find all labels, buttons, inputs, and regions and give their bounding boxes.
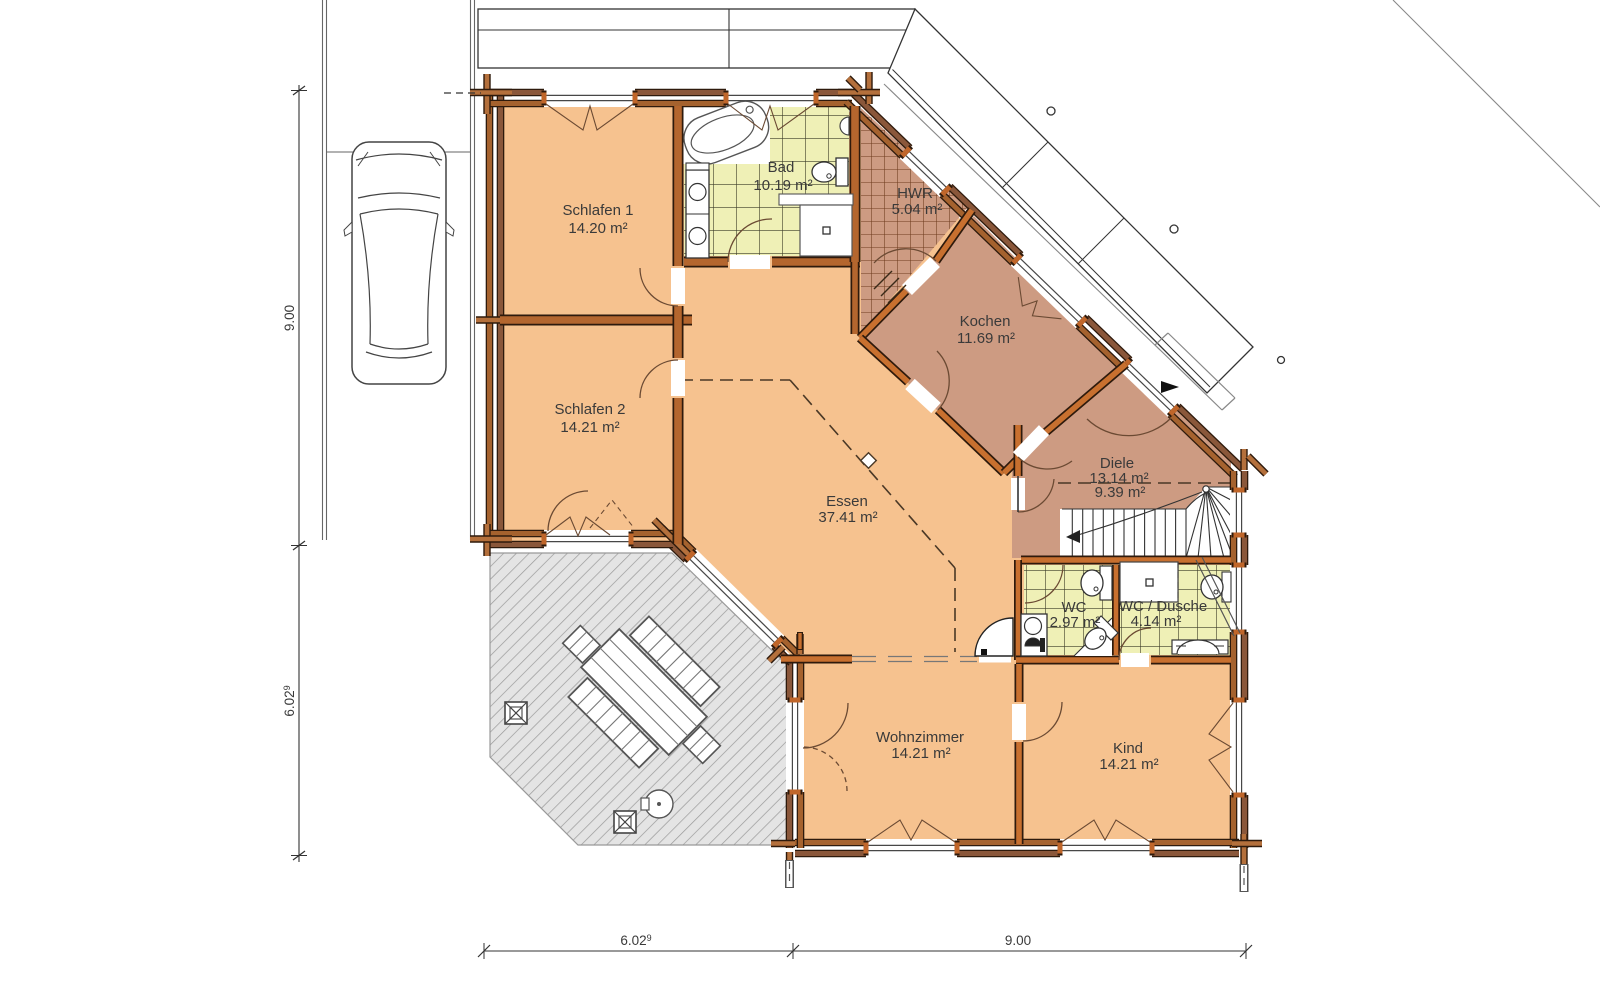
svg-text:Kochen: Kochen xyxy=(960,313,1011,330)
svg-text:14.20 m²: 14.20 m² xyxy=(568,220,627,237)
svg-text:Bad: Bad xyxy=(768,159,795,176)
svg-text:11.69 m²: 11.69 m² xyxy=(957,330,1015,347)
svg-text:4.14 m²: 4.14 m² xyxy=(1131,613,1182,630)
svg-text:HWR: HWR xyxy=(897,185,933,202)
svg-text:5.04 m²: 5.04 m² xyxy=(892,201,943,218)
svg-text:Schlafen 2: Schlafen 2 xyxy=(555,401,626,418)
svg-text:Kind: Kind xyxy=(1113,740,1143,757)
svg-text:9.00: 9.00 xyxy=(1005,933,1031,948)
svg-text:37.41 m²: 37.41 m² xyxy=(818,509,877,526)
svg-text:14.21 m²: 14.21 m² xyxy=(891,745,950,762)
svg-text:2.97 m²: 2.97 m² xyxy=(1050,614,1101,631)
svg-text:Schlafen 1: Schlafen 1 xyxy=(563,202,634,219)
svg-text:Wohnzimmer: Wohnzimmer xyxy=(876,729,964,746)
svg-text:9.39 m²: 9.39 m² xyxy=(1095,484,1146,501)
svg-text:10.19 m²: 10.19 m² xyxy=(753,177,812,194)
svg-text:14.21 m²: 14.21 m² xyxy=(560,419,619,436)
svg-text:Essen: Essen xyxy=(826,493,868,510)
svg-text:14.21 m²: 14.21 m² xyxy=(1099,756,1158,773)
svg-text:9.00: 9.00 xyxy=(282,305,297,331)
